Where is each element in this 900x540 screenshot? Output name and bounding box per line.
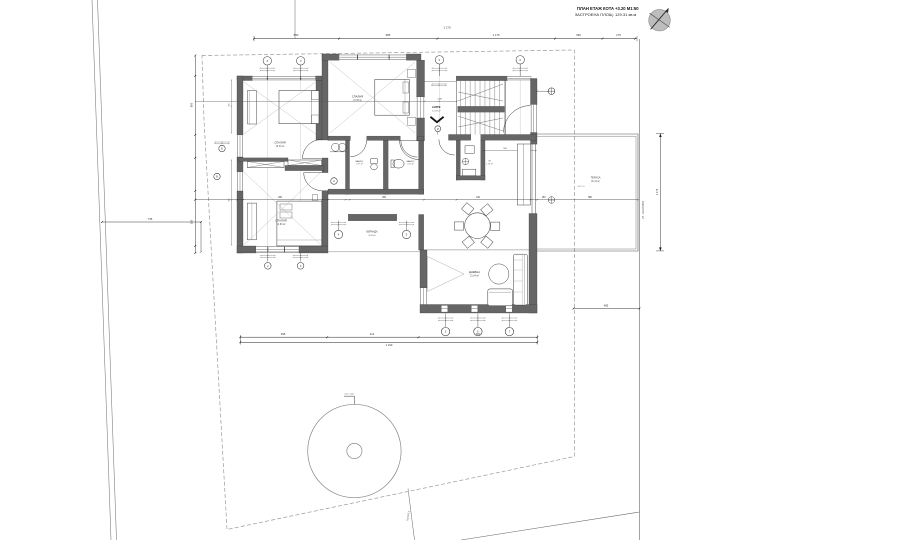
svg-text:М: М bbox=[489, 161, 491, 163]
svg-text:ТЕРАСА: ТЕРАСА bbox=[590, 176, 600, 180]
svg-text:1.70 м²: 1.70 м² bbox=[486, 163, 493, 166]
svg-text:745: 745 bbox=[148, 217, 153, 221]
svg-text:12.93 м²: 12.93 м² bbox=[432, 109, 441, 112]
svg-text:8.50 м²: 8.50 м² bbox=[368, 234, 375, 237]
svg-text:800: 800 bbox=[190, 102, 194, 107]
svg-text:40.12 м²: 40.12 м² bbox=[591, 180, 600, 183]
svg-text:СПАЛНЯ: СПАЛНЯ bbox=[274, 141, 285, 145]
svg-text:ЗАСТРОЕНА ПЛОЩ: 129.31 кв.м: ЗАСТРОЕНА ПЛОЩ: 129.31 кв.м bbox=[575, 12, 637, 17]
svg-text:АНТРЕ: АНТРЕ bbox=[432, 106, 441, 109]
svg-text:БАНЯ 2: БАНЯ 2 bbox=[407, 160, 416, 163]
svg-text:3.77 м²: 3.77 м² bbox=[356, 163, 363, 166]
svg-text:360: 360 bbox=[476, 332, 481, 336]
svg-text:412: 412 bbox=[370, 332, 375, 336]
svg-text:175: 175 bbox=[616, 33, 621, 37]
svg-text:1 170: 1 170 bbox=[444, 25, 451, 29]
svg-text:985: 985 bbox=[386, 33, 391, 37]
svg-text:40.12 м: 40.12 м bbox=[577, 186, 585, 188]
svg-text:1 193: 1 193 bbox=[386, 343, 393, 347]
svg-text:УЛ. ОСОГОВО: УЛ. ОСОГОВО bbox=[641, 201, 645, 219]
svg-text:В: В bbox=[216, 175, 218, 179]
svg-text:БАНЯ 1: БАНЯ 1 bbox=[356, 160, 365, 163]
svg-text:21.84 м²: 21.84 м² bbox=[470, 275, 479, 278]
svg-text:Б: Б bbox=[221, 147, 223, 151]
svg-text:850: 850 bbox=[294, 33, 299, 37]
svg-text:14.80 м²: 14.80 м² bbox=[277, 223, 286, 226]
svg-text:И: И bbox=[437, 127, 439, 131]
svg-text:1 175: 1 175 bbox=[655, 188, 659, 195]
svg-text:СПАЛНЯ: СПАЛНЯ bbox=[352, 95, 363, 99]
svg-text:530: 530 bbox=[190, 219, 194, 224]
svg-text:15.95 м²: 15.95 м² bbox=[353, 99, 362, 102]
svg-text:3.71 м²: 3.71 м² bbox=[407, 163, 414, 166]
svg-text:ПЛАН ЕТАЖ КОТА +3.20 М1:50: ПЛАН ЕТАЖ КОТА +3.20 М1:50 bbox=[577, 6, 639, 11]
svg-text:485: 485 bbox=[604, 303, 609, 307]
svg-text:298: 298 bbox=[281, 332, 286, 336]
svg-text:ДНЕВНА: ДНЕВНА bbox=[469, 270, 480, 274]
svg-text:СПАЛНЯ: СПАЛНЯ bbox=[275, 219, 286, 223]
svg-text:септ. яма: септ. яма bbox=[344, 393, 354, 395]
svg-text:А: А bbox=[333, 179, 335, 183]
svg-text:360: 360 bbox=[576, 33, 581, 37]
svg-text:16.30 м²: 16.30 м² bbox=[276, 145, 285, 148]
svg-text:1 175: 1 175 bbox=[493, 33, 500, 37]
svg-text:ВЕРАНДА: ВЕРАНДА bbox=[366, 231, 378, 234]
